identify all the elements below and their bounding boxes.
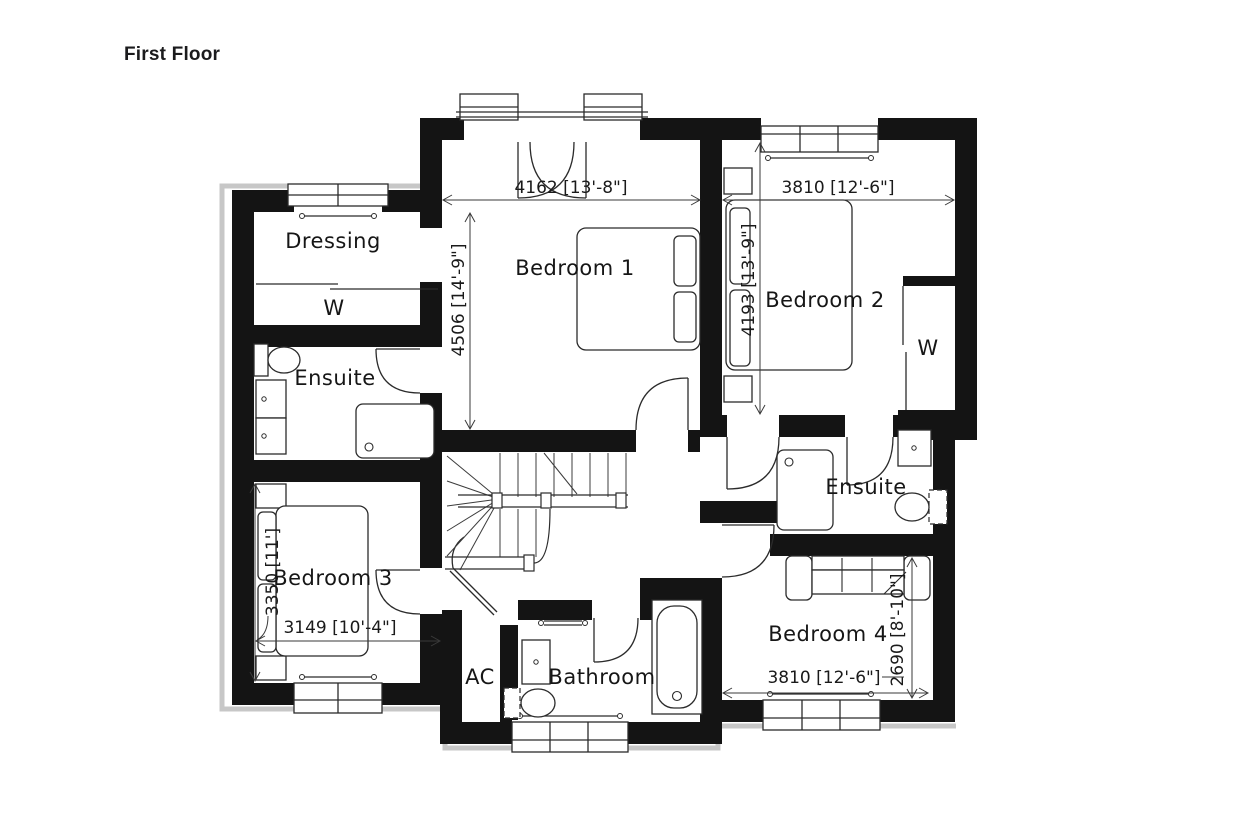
door-bedroom2 bbox=[727, 437, 779, 489]
vanity-ensuite-left bbox=[256, 380, 286, 454]
window-bedroom4 bbox=[763, 692, 880, 731]
wardrobe-bedroom2-front bbox=[903, 286, 906, 410]
dim-label-bedroom1-width: 4162 [13'-8"] bbox=[514, 178, 627, 198]
room-label-bedroom2: Bedroom 2 bbox=[765, 288, 885, 312]
room-label-ac: AC bbox=[465, 665, 495, 689]
window-bedroom2 bbox=[761, 126, 878, 161]
bed-bedroom-1 bbox=[577, 228, 700, 350]
room-label-bedroom1: Bedroom 1 bbox=[515, 256, 635, 280]
vanity-bathroom bbox=[522, 640, 550, 684]
toilet-bathroom bbox=[504, 688, 555, 718]
dim-label-bedroom4-width: 3810 [12'-6"] bbox=[767, 668, 880, 688]
room-label-ensuite-left: Ensuite bbox=[294, 366, 375, 390]
dim-bedroom1-depth: 4506 [14'-9"] bbox=[449, 213, 475, 429]
room-label-bedroom2-wardrobe: W bbox=[917, 336, 938, 360]
dim-label-bedroom3-width: 3149 [10'-4"] bbox=[283, 618, 396, 638]
towel-rail-bathroom bbox=[539, 621, 588, 626]
sofa-bed-bedroom-4 bbox=[786, 556, 930, 600]
bathtub bbox=[652, 600, 702, 714]
dim-label-bedroom2-width: 3810 [12'-6"] bbox=[781, 178, 894, 198]
room-label-dressing: Dressing bbox=[285, 229, 381, 253]
shower-ensuite-left bbox=[356, 404, 434, 458]
wardrobe-dressing-front bbox=[256, 284, 438, 289]
door-bathroom bbox=[594, 618, 638, 662]
window-bedroom1-right bbox=[584, 94, 642, 120]
room-label-ensuite-right: Ensuite bbox=[825, 475, 906, 499]
dim-bedroom1-width: 4162 [13'-8"] bbox=[443, 178, 700, 205]
door-ensuite-left bbox=[376, 349, 420, 393]
door-ac-cupboard bbox=[450, 537, 497, 615]
dim-label-bedroom4-depth: 2690 [8'-10"] bbox=[888, 573, 908, 686]
room-label-bathroom: Bathroom bbox=[548, 665, 655, 689]
staircase bbox=[445, 453, 628, 571]
door-bedroom4 bbox=[722, 525, 774, 577]
dim-label-bedroom2-depth: 4193 [13'-9"] bbox=[739, 223, 759, 336]
window-bedroom1-left bbox=[460, 94, 518, 120]
floor-plan-drawing: First Floor bbox=[0, 0, 1240, 822]
window-bathroom bbox=[512, 714, 628, 753]
window-bedroom3 bbox=[294, 675, 382, 714]
room-label-bedroom4: Bedroom 4 bbox=[768, 622, 888, 646]
toilet-ensuite-left bbox=[254, 344, 300, 376]
door-bedroom1 bbox=[636, 378, 688, 430]
page-title: First Floor bbox=[124, 44, 221, 65]
room-label-dressing-wardrobe: W bbox=[323, 296, 344, 320]
dim-label-bedroom1-depth: 4506 [14'-9"] bbox=[449, 243, 469, 356]
room-label-bedroom3: Bedroom 3 bbox=[273, 566, 393, 590]
vanity-ensuite-right bbox=[898, 430, 931, 466]
